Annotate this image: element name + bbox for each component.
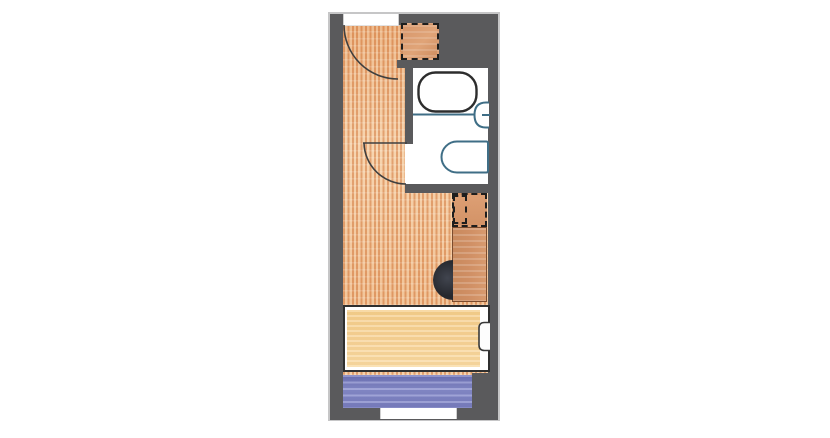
wall-block-bottom-right [472,373,498,420]
entrance-opening [343,14,399,26]
bathroom-wall-left [405,62,413,144]
desk [452,227,487,302]
bathroom-wall-bottom [405,184,498,193]
shoe-cabinet [401,23,439,60]
window-opening [380,408,457,419]
wall-left [330,14,343,420]
rug [343,375,472,408]
mattress [347,310,480,367]
wall-block-top-right [439,14,498,64]
bed-frame [343,305,490,372]
bathroom-floor [413,68,488,184]
overhead-shelf-inner [453,195,467,224]
floorplan-canvas [0,0,830,438]
bathroom-doorway [405,144,414,185]
